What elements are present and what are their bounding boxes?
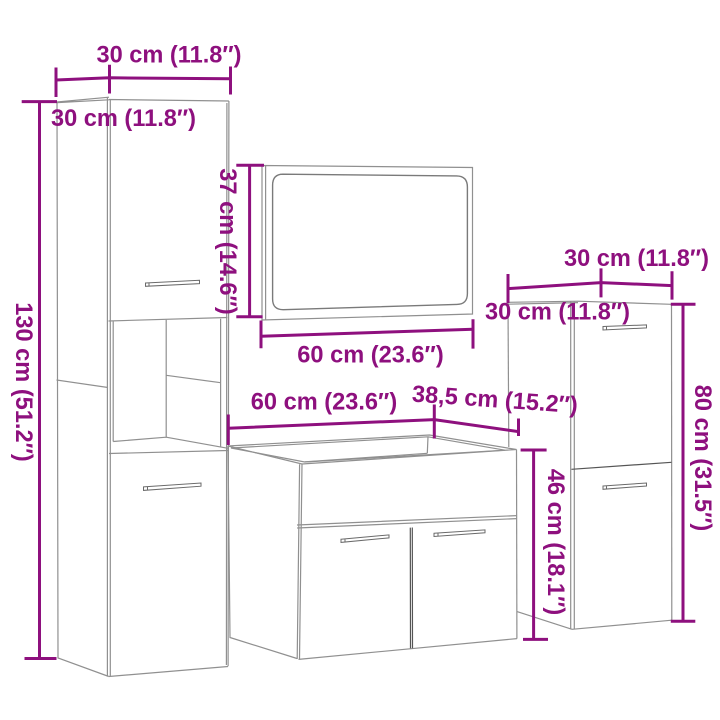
svg-text:30 cm (11.8″): 30 cm (11.8″): [485, 300, 630, 326]
svg-text:46 cm (18.1″): 46 cm (18.1″): [542, 469, 568, 615]
svg-text:30 cm (11.8″): 30 cm (11.8″): [564, 246, 709, 272]
svg-text:80 cm (31.5″): 80 cm (31.5″): [689, 385, 715, 531]
svg-text:130 cm (51.2″): 130 cm (51.2″): [10, 302, 36, 462]
svg-text:37 cm (14.6″): 37 cm (14.6″): [214, 168, 240, 314]
svg-text:60 cm (23.6″): 60 cm (23.6″): [297, 343, 443, 369]
svg-text:30 cm (11.8″): 30 cm (11.8″): [96, 43, 241, 69]
svg-text:60 cm (23.6″): 60 cm (23.6″): [251, 390, 397, 416]
svg-text:30 cm (11.8″): 30 cm (11.8″): [51, 106, 196, 132]
